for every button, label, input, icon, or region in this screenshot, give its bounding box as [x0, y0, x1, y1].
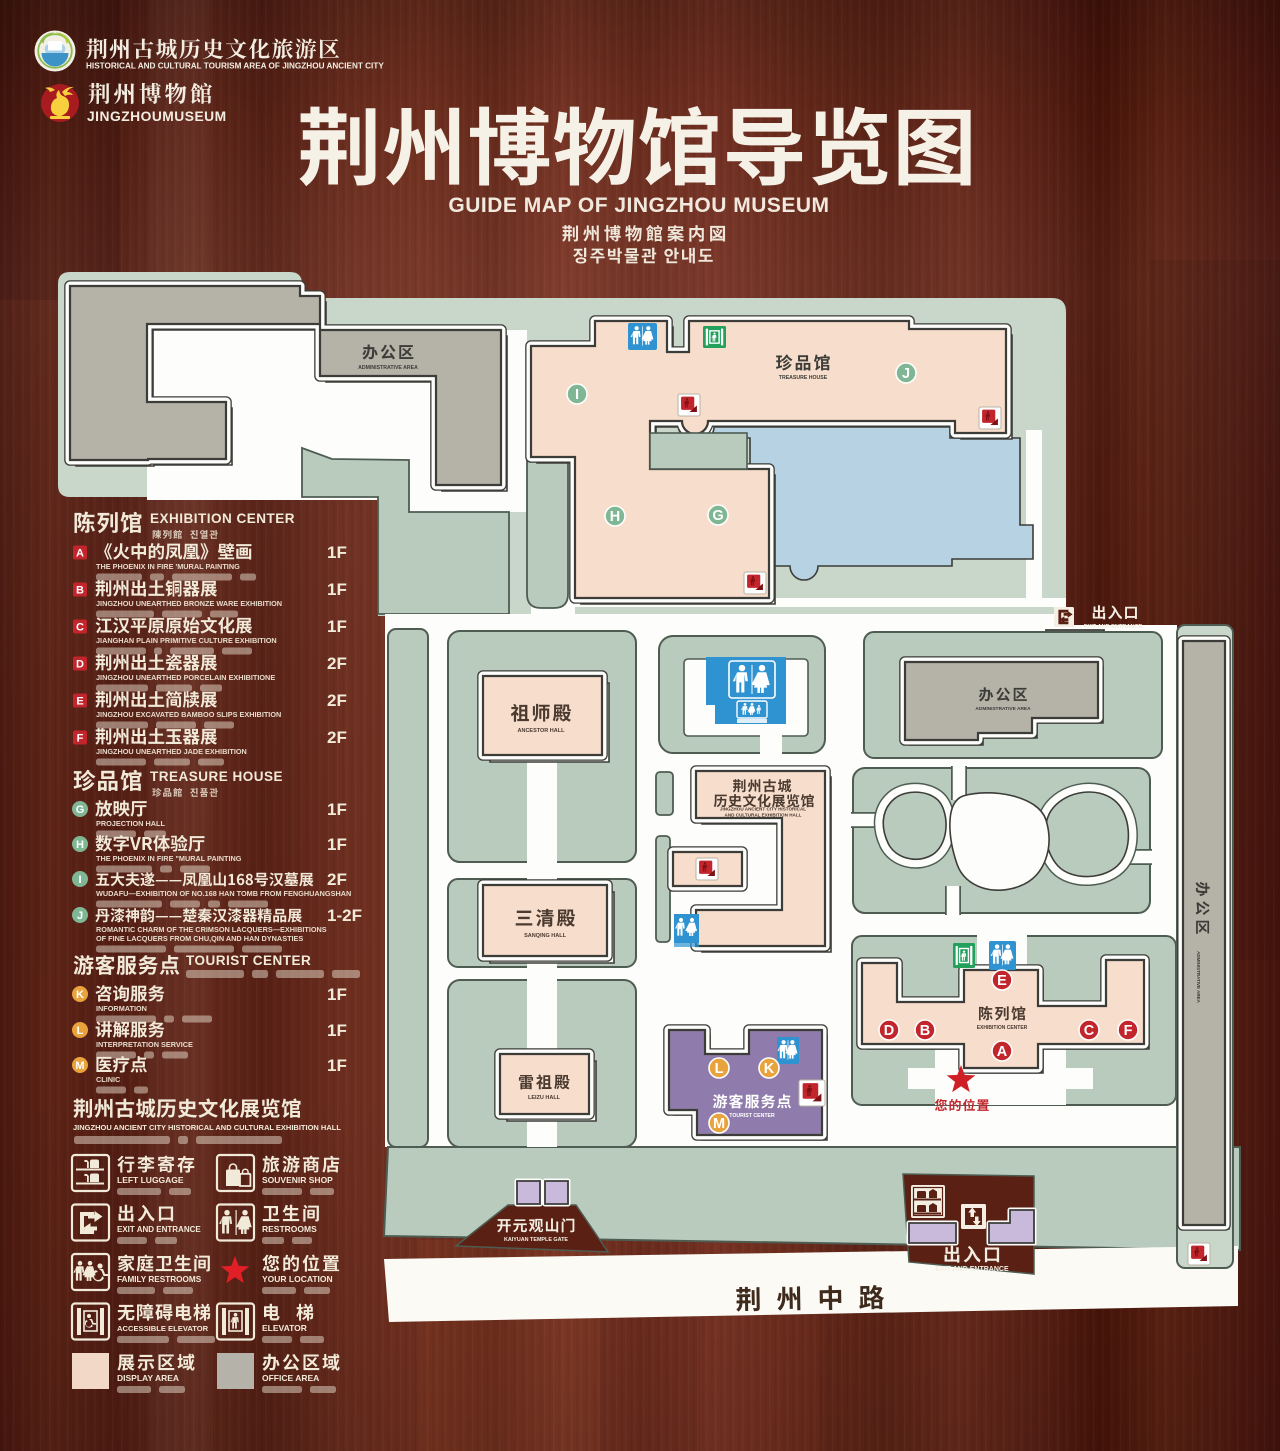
- svg-text:TOURIST CENTER: TOURIST CENTER: [729, 1113, 775, 1119]
- svg-text:JINGZHOU UNEARTHED PORCELAIN E: JINGZHOU UNEARTHED PORCELAIN EXHIBITIONE: [96, 673, 275, 682]
- svg-text:B: B: [76, 585, 84, 597]
- svg-text:I: I: [575, 387, 579, 403]
- svg-text:1F: 1F: [327, 1021, 347, 1040]
- svg-text:LEIZU HALL: LEIZU HALL: [528, 1095, 561, 1101]
- svg-text:F: F: [77, 733, 84, 745]
- svg-text:WUDAFU—EXHIBITION OF NO.168 HA: WUDAFU—EXHIBITION OF NO.168 HAN TOMB FRO…: [96, 889, 351, 898]
- svg-text:PROJECTION HALL: PROJECTION HALL: [96, 819, 165, 828]
- svg-text:L: L: [715, 1061, 724, 1077]
- svg-text:C: C: [76, 622, 84, 634]
- svg-text:ADMINISTRATIVE AREA: ADMINISTRATIVE AREA: [975, 706, 1031, 712]
- svg-text:JINGZHOU EXCAVATED BAMBOO SLIP: JINGZHOU EXCAVATED BAMBOO SLIPS EXHIBITI…: [96, 710, 281, 719]
- svg-text:F: F: [1124, 1023, 1133, 1039]
- svg-text:SOUVENIR SHOP: SOUVENIR SHOP: [262, 1175, 333, 1185]
- svg-text:EXHIBITION CENTER: EXHIBITION CENTER: [150, 511, 295, 526]
- svg-text:ADMINISTRATIVE AREA: ADMINISTRATIVE AREA: [1196, 951, 1201, 1004]
- svg-text:EXHIBITION CENTER: EXHIBITION CENTER: [977, 1025, 1028, 1031]
- svg-text:KAIYUAN TEMPLE GATE: KAIYUAN TEMPLE GATE: [504, 1237, 568, 1243]
- svg-text:B: B: [920, 1023, 930, 1039]
- svg-text:EXIT AND ENTRANCE: EXIT AND ENTRANCE: [117, 1225, 201, 1234]
- svg-text:JINGZHOU ANCIENT CITY HISTORIC: JINGZHOU ANCIENT CITY HISTORICAL AND CUL…: [73, 1123, 341, 1132]
- svg-text:RESTROOMS: RESTROOMS: [262, 1224, 317, 1234]
- svg-text:THE PHOENIX IN FIRE 'MURAL PAI: THE PHOENIX IN FIRE 'MURAL PAINTING: [96, 562, 240, 571]
- svg-text:OFFICE AREA: OFFICE AREA: [262, 1373, 319, 1383]
- svg-text:A: A: [76, 548, 84, 560]
- svg-text:D: D: [76, 659, 84, 671]
- svg-text:I: I: [78, 874, 81, 886]
- svg-text:1F: 1F: [327, 835, 347, 854]
- svg-text:E: E: [997, 973, 1007, 989]
- svg-text:M: M: [713, 1116, 725, 1132]
- svg-text:ADMINISTRATIVE AREA: ADMINISTRATIVE AREA: [358, 365, 418, 371]
- svg-text:INFORMATION: INFORMATION: [96, 1004, 147, 1013]
- svg-text:JINGZHOU UNEARTHED JADE EXHIBI: JINGZHOU UNEARTHED JADE EXHIBITION: [96, 747, 247, 756]
- svg-text:YOUR LOCATION: YOUR LOCATION: [262, 1274, 333, 1284]
- svg-text:1F: 1F: [327, 580, 347, 599]
- svg-text:DISPLAY AREA: DISPLAY AREA: [117, 1373, 179, 1383]
- svg-text:J: J: [902, 366, 910, 382]
- svg-text:TOURIST CENTER: TOURIST CENTER: [186, 953, 311, 968]
- svg-text:1F: 1F: [327, 1056, 347, 1075]
- svg-text:M: M: [75, 1060, 84, 1072]
- svg-text:CLINIC: CLINIC: [96, 1075, 121, 1084]
- svg-text:1F: 1F: [327, 800, 347, 819]
- svg-text:H: H: [76, 839, 84, 851]
- svg-text:ACCESSIBLE ELEVATOR: ACCESSIBLE ELEVATOR: [117, 1324, 209, 1333]
- svg-text:G: G: [76, 804, 85, 816]
- svg-text:INTERPRETATION SERVICE: INTERPRETATION SERVICE: [96, 1040, 193, 1049]
- svg-text:ANCESTOR HALL: ANCESTOR HALL: [518, 728, 566, 734]
- svg-text:L: L: [77, 1025, 84, 1037]
- svg-text:K: K: [76, 989, 84, 1001]
- svg-text:2F: 2F: [327, 691, 347, 710]
- svg-text:OF FINE LACQUERS FROM CHU,QIN: OF FINE LACQUERS FROM CHU,QIN AND HAN DY…: [96, 934, 303, 943]
- svg-text:LEFT LUGGAGE: LEFT LUGGAGE: [117, 1175, 184, 1185]
- svg-text:2F: 2F: [327, 654, 347, 673]
- svg-text:1F: 1F: [327, 985, 347, 1004]
- svg-text:2F: 2F: [327, 870, 347, 889]
- svg-text:J: J: [77, 910, 83, 922]
- svg-text:G: G: [712, 508, 723, 524]
- svg-text:ELEVATOR: ELEVATOR: [262, 1323, 307, 1333]
- svg-text:JINGZHOUMUSEUM: JINGZHOUMUSEUM: [87, 109, 227, 124]
- svg-text:JIANGHAN PLAIN PRIMITIVE CULTU: JIANGHAN PLAIN PRIMITIVE CULTURE EXHIBIT…: [96, 636, 277, 645]
- svg-text:JINGZHOU UNEARTHED BRONZE WARE: JINGZHOU UNEARTHED BRONZE WARE EXHIBITIO…: [96, 599, 282, 608]
- svg-text:SANQING HALL: SANQING HALL: [524, 933, 567, 939]
- svg-text:1F: 1F: [327, 617, 347, 636]
- svg-text:1F: 1F: [327, 543, 347, 562]
- svg-text:K: K: [764, 1061, 775, 1077]
- svg-text:2F: 2F: [327, 728, 347, 747]
- svg-text:AND CULTURAL EXHIBITION HALL: AND CULTURAL EXHIBITION HALL: [725, 813, 802, 818]
- svg-text:H: H: [610, 509, 620, 525]
- svg-text:1-2F: 1-2F: [327, 906, 362, 925]
- svg-text:D: D: [884, 1023, 894, 1039]
- svg-text:TREASURE HOUSE: TREASURE HOUSE: [150, 769, 283, 784]
- svg-text:HISTORICAL AND CULTURAL TOURIS: HISTORICAL AND CULTURAL TOURISM AREA OF …: [86, 62, 384, 71]
- svg-text:FAMILY RESTROOMS: FAMILY RESTROOMS: [117, 1275, 202, 1284]
- svg-text:A: A: [997, 1044, 1008, 1060]
- svg-text:JINGZHOU ANCIENT CITY HISTORIC: JINGZHOU ANCIENT CITY HISTORICAL: [720, 807, 806, 812]
- svg-text:THE PHOENIX IN FIRE "MURAL PAI: THE PHOENIX IN FIRE "MURAL PAINTING: [96, 854, 242, 863]
- svg-text:ROMANTIC CHARM OF THE CRIMSON: ROMANTIC CHARM OF THE CRIMSON LACQUERS—E…: [96, 925, 327, 934]
- svg-text:EXIT AND ENTRANCE: EXIT AND ENTRANCE: [935, 1266, 1009, 1273]
- svg-text:TREASURE HOUSE: TREASURE HOUSE: [779, 375, 828, 381]
- svg-text:E: E: [76, 696, 83, 708]
- svg-text:C: C: [1084, 1023, 1095, 1039]
- svg-text:GUIDE MAP OF JINGZHOU MUSEUM: GUIDE MAP OF JINGZHOU MUSEUM: [448, 194, 829, 217]
